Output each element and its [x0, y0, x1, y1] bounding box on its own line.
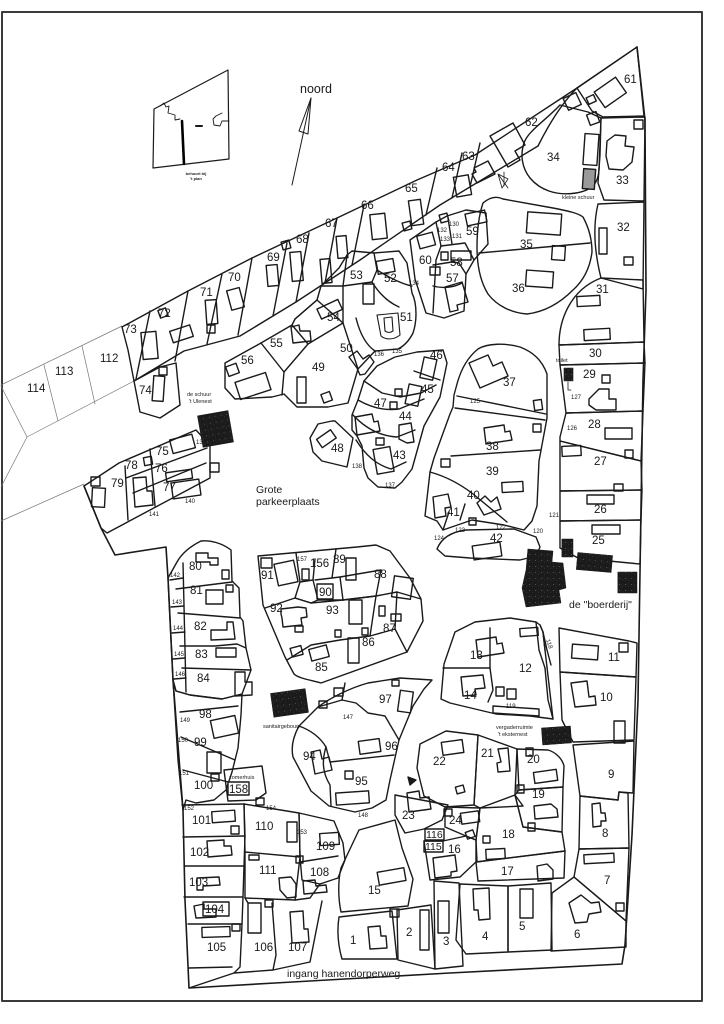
svg-text:108: 108 — [310, 867, 329, 879]
svg-text:84: 84 — [197, 673, 210, 685]
svg-text:58: 58 — [450, 257, 463, 269]
svg-text:96: 96 — [385, 741, 398, 753]
svg-text:10: 10 — [600, 692, 613, 704]
svg-text:45: 45 — [421, 384, 434, 396]
svg-text:47: 47 — [374, 398, 387, 410]
svg-text:138: 138 — [352, 464, 363, 470]
svg-text:107: 107 — [288, 942, 307, 954]
svg-text:130: 130 — [449, 222, 460, 228]
svg-text:137: 137 — [385, 483, 396, 489]
svg-text:noord: noord — [300, 82, 332, 96]
svg-text:parkeerplaats: parkeerplaats — [256, 496, 320, 508]
svg-text:83: 83 — [195, 649, 208, 661]
svg-text:148: 148 — [358, 813, 369, 819]
svg-text:51: 51 — [400, 312, 413, 324]
svg-text:15: 15 — [368, 885, 381, 897]
svg-text:2: 2 — [406, 927, 412, 939]
svg-text:102: 102 — [190, 847, 209, 859]
svg-text:56: 56 — [241, 355, 254, 367]
svg-text:153: 153 — [297, 830, 308, 836]
svg-text:152: 152 — [184, 806, 195, 812]
svg-text:88: 88 — [374, 569, 387, 581]
svg-text:111: 111 — [259, 865, 276, 877]
svg-text:131: 131 — [452, 234, 463, 240]
svg-text:73: 73 — [124, 324, 137, 336]
svg-text:114: 114 — [27, 383, 46, 395]
svg-text:zomerhuis: zomerhuis — [229, 775, 255, 781]
svg-text:103: 103 — [189, 877, 208, 889]
svg-text:97: 97 — [379, 694, 392, 706]
svg-text:74: 74 — [139, 385, 152, 397]
svg-text:26: 26 — [594, 504, 607, 516]
svg-text:105: 105 — [207, 942, 226, 954]
svg-text:157: 157 — [297, 557, 308, 563]
svg-text:122: 122 — [496, 525, 507, 531]
svg-text:52: 52 — [384, 273, 397, 285]
svg-text:40: 40 — [467, 490, 480, 502]
svg-text:9: 9 — [608, 769, 614, 781]
svg-text:104: 104 — [205, 904, 225, 916]
svg-text:3: 3 — [443, 936, 449, 948]
svg-text:kleine schuur: kleine schuur — [562, 195, 595, 201]
svg-text:33: 33 — [616, 175, 629, 187]
svg-text:125: 125 — [470, 399, 481, 405]
svg-text:53: 53 — [350, 270, 363, 282]
svg-text:156: 156 — [310, 558, 329, 570]
svg-text:4: 4 — [482, 931, 489, 943]
svg-text:91: 91 — [261, 570, 274, 582]
svg-text:143: 143 — [172, 600, 183, 606]
svg-text:81: 81 — [190, 585, 203, 597]
svg-text:158: 158 — [229, 784, 248, 796]
svg-text:65: 65 — [405, 183, 418, 195]
svg-text:77: 77 — [163, 482, 176, 494]
svg-text:140: 140 — [185, 499, 196, 505]
svg-text:61: 61 — [624, 74, 637, 86]
svg-text:136: 136 — [374, 352, 385, 358]
svg-text:59: 59 — [466, 226, 479, 238]
svg-text:1: 1 — [350, 935, 356, 947]
svg-text:ingang hanendorperweg: ingang hanendorperweg — [287, 968, 400, 980]
svg-text:34: 34 — [547, 152, 560, 164]
svg-text:39: 39 — [486, 466, 499, 478]
svg-text:31: 31 — [596, 284, 609, 296]
svg-text:101: 101 — [192, 815, 211, 827]
svg-text:22: 22 — [433, 756, 446, 768]
svg-text:60: 60 — [419, 255, 432, 267]
svg-text:16: 16 — [448, 844, 461, 856]
svg-text:98: 98 — [199, 709, 212, 721]
svg-text:141: 141 — [149, 512, 160, 518]
svg-text:69: 69 — [267, 252, 280, 264]
svg-text:30: 30 — [589, 348, 602, 360]
svg-text:115: 115 — [425, 841, 442, 853]
svg-text:'t eksternest: 't eksternest — [498, 732, 528, 738]
svg-text:144: 144 — [173, 626, 184, 632]
svg-text:110: 110 — [255, 821, 273, 833]
svg-text:12: 12 — [519, 663, 532, 675]
svg-text:100: 100 — [194, 780, 213, 792]
svg-text:78: 78 — [125, 460, 138, 472]
svg-text:135: 135 — [392, 349, 403, 355]
svg-text:75: 75 — [156, 446, 169, 458]
svg-text:de schuur: de schuur — [187, 392, 211, 398]
svg-text:'t plan: 't plan — [190, 176, 202, 181]
svg-text:80: 80 — [189, 561, 202, 573]
svg-text:142: 142 — [170, 573, 181, 579]
svg-text:Grote: Grote — [256, 484, 282, 496]
svg-text:147: 147 — [343, 715, 354, 721]
svg-text:63: 63 — [462, 151, 475, 163]
svg-text:71: 71 — [200, 287, 213, 299]
svg-text:49: 49 — [312, 362, 325, 374]
svg-text:32: 32 — [617, 222, 630, 234]
svg-text:106: 106 — [254, 942, 273, 954]
svg-text:7: 7 — [604, 875, 610, 887]
svg-text:55: 55 — [270, 338, 283, 350]
svg-text:11: 11 — [608, 652, 620, 664]
svg-text:sanitairgebouw: sanitairgebouw — [263, 724, 300, 730]
svg-text:146: 146 — [175, 672, 186, 678]
svg-text:99: 99 — [194, 737, 207, 749]
svg-text:90: 90 — [319, 587, 332, 599]
svg-text:89: 89 — [333, 554, 346, 566]
svg-text:70: 70 — [228, 272, 241, 284]
svg-text:113: 113 — [55, 366, 73, 378]
svg-text:79: 79 — [111, 478, 124, 490]
svg-text:44: 44 — [399, 411, 412, 423]
svg-text:132: 132 — [437, 228, 448, 234]
svg-text:149: 149 — [180, 718, 191, 724]
svg-text:toilet: toilet — [556, 358, 568, 364]
svg-text:vergaderruimte: vergaderruimte — [496, 725, 533, 731]
svg-text:68: 68 — [296, 234, 309, 246]
svg-text:109: 109 — [316, 841, 335, 853]
svg-text:35: 35 — [520, 239, 533, 251]
svg-text:154: 154 — [266, 806, 277, 812]
svg-text:37: 37 — [503, 377, 516, 389]
svg-text:93: 93 — [326, 605, 339, 617]
svg-text:150: 150 — [178, 738, 189, 744]
svg-text:95: 95 — [355, 776, 368, 788]
svg-text:116: 116 — [426, 829, 443, 841]
svg-text:28: 28 — [588, 419, 601, 431]
svg-text:82: 82 — [194, 621, 207, 633]
svg-text:29: 29 — [583, 369, 596, 381]
svg-text:27: 27 — [594, 456, 607, 468]
svg-text:119: 119 — [506, 704, 516, 710]
svg-text:de "boerderij": de "boerderij" — [569, 599, 632, 611]
svg-text:86: 86 — [362, 637, 375, 649]
svg-text:126: 126 — [567, 426, 578, 432]
svg-text:25: 25 — [592, 535, 605, 547]
svg-text:127: 127 — [571, 395, 582, 401]
svg-text:85: 85 — [315, 662, 328, 674]
svg-text:120: 120 — [533, 529, 544, 535]
svg-text:43: 43 — [393, 450, 406, 462]
svg-text:94: 94 — [303, 751, 316, 763]
svg-text:5: 5 — [519, 921, 525, 933]
svg-text:64: 64 — [442, 162, 455, 174]
svg-text:133: 133 — [440, 237, 451, 243]
svg-text:50: 50 — [340, 343, 353, 355]
svg-text:8: 8 — [602, 828, 608, 840]
svg-text:121: 121 — [549, 513, 560, 519]
svg-text:6: 6 — [574, 929, 580, 941]
svg-text:41: 41 — [447, 507, 460, 519]
svg-text:18: 18 — [502, 829, 515, 841]
svg-text:21: 21 — [481, 748, 494, 760]
svg-text:48: 48 — [331, 443, 344, 455]
svg-text:145: 145 — [174, 652, 185, 658]
svg-text:67: 67 — [325, 218, 338, 230]
svg-text:19: 19 — [532, 789, 545, 801]
svg-text:36: 36 — [512, 283, 525, 295]
svg-text:66: 66 — [361, 200, 374, 212]
svg-text:'t Ulenest: 't Ulenest — [189, 399, 212, 405]
svg-text:17: 17 — [501, 866, 514, 878]
svg-text:151: 151 — [179, 771, 190, 777]
svg-text:87: 87 — [383, 623, 396, 635]
svg-text:112: 112 — [100, 353, 118, 365]
